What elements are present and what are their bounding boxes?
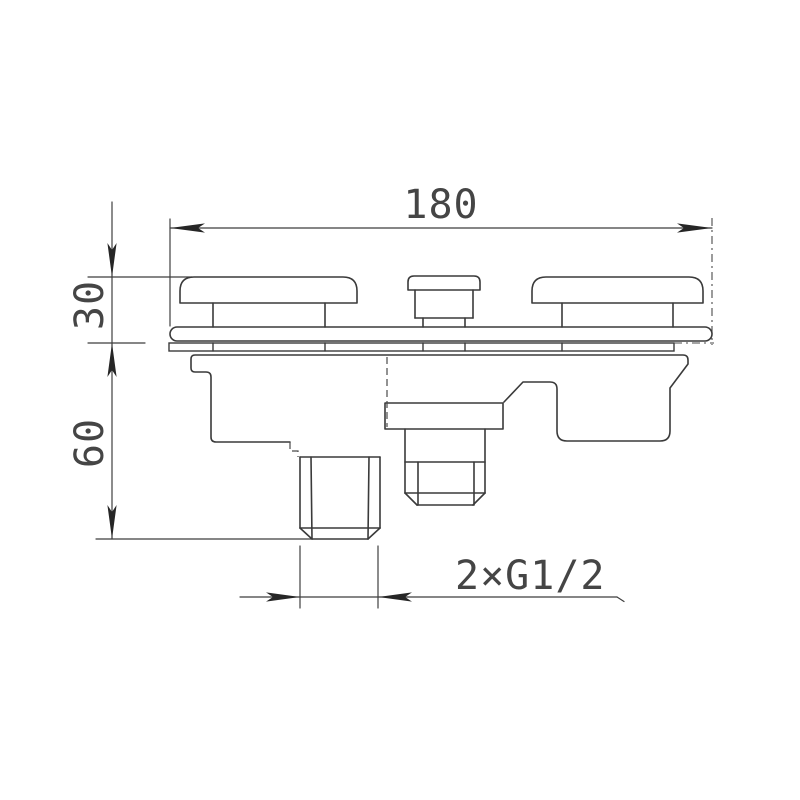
dimension-overall-width: 180 bbox=[170, 182, 712, 345]
left-fitting-hex-left bbox=[311, 457, 312, 539]
left-fitting-chamfer-right bbox=[368, 528, 380, 539]
spout-boss bbox=[385, 403, 503, 429]
dimension-width-label: 180 bbox=[403, 182, 478, 228]
leader-tail bbox=[617, 597, 624, 602]
right-fitting-chamfer-left bbox=[405, 493, 417, 505]
drawing-page: 180 30 60 2×G1/2 bbox=[0, 0, 800, 800]
thread-callout-label: 2×G1/2 bbox=[455, 553, 606, 599]
dimension-upper-height-label: 30 bbox=[67, 280, 113, 330]
right-inlet-fitting bbox=[405, 429, 485, 505]
mounting-strip-outline bbox=[169, 343, 674, 351]
left-handle-cap bbox=[180, 277, 357, 303]
mounting-strip bbox=[169, 343, 714, 351]
dimension-thread-callout: 2×G1/2 bbox=[240, 546, 624, 608]
valve-body bbox=[191, 355, 688, 457]
dimension-lower-height-label: 60 bbox=[67, 418, 113, 468]
center-cap bbox=[408, 276, 480, 327]
technical-drawing-svg: 180 30 60 2×G1/2 bbox=[0, 0, 800, 800]
right-handle bbox=[532, 277, 703, 327]
body-step-edge bbox=[290, 442, 298, 457]
cover-plate-outline bbox=[170, 327, 712, 341]
cover-plate bbox=[170, 327, 712, 341]
left-inlet-fitting bbox=[300, 457, 380, 539]
left-fitting-chamfer-left bbox=[300, 528, 312, 539]
left-handle bbox=[180, 277, 357, 327]
left-fitting-hex-right bbox=[368, 457, 369, 539]
center-cap-rim bbox=[408, 276, 480, 290]
right-handle-cap bbox=[532, 277, 703, 303]
dimension-heights: 30 60 bbox=[67, 202, 311, 539]
